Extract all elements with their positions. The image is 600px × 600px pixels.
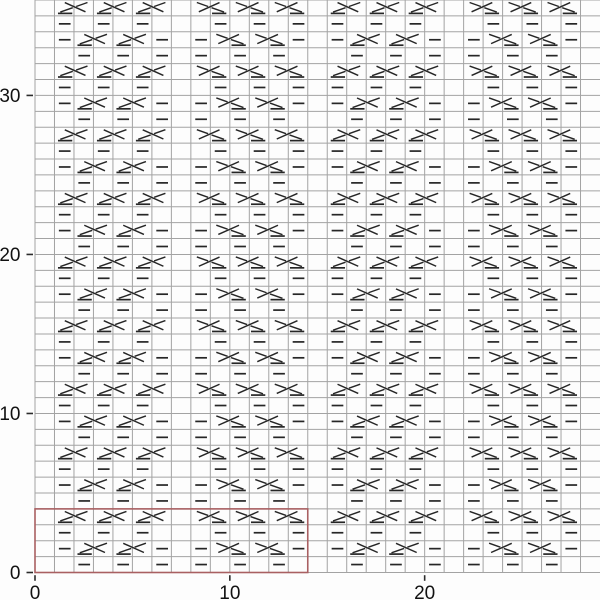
svg-text:30: 30 <box>0 86 21 107</box>
svg-text:20: 20 <box>0 245 21 266</box>
svg-text:0: 0 <box>30 583 41 600</box>
svg-text:10: 10 <box>219 583 240 600</box>
svg-text:0: 0 <box>10 563 21 584</box>
svg-text:20: 20 <box>414 583 435 600</box>
svg-text:10: 10 <box>0 404 21 425</box>
